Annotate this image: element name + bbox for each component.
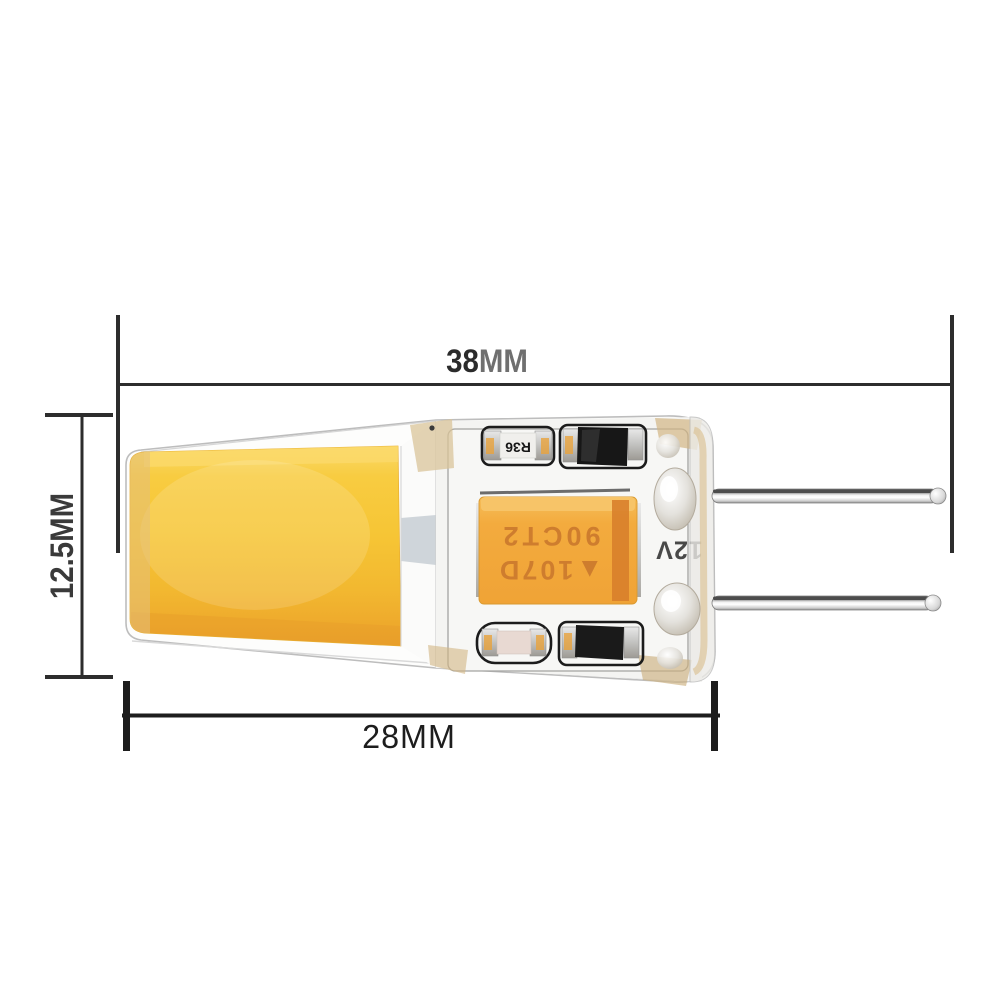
svg-text:▲107D: ▲107D [497, 555, 603, 585]
solder-bump-bottom [657, 647, 683, 669]
bulb-dimension-drawing: R36 ▲107D 90CT2 [0, 0, 1000, 1000]
dimension-label-12-5mm: 12.5MM [44, 493, 80, 599]
cob-led [130, 446, 401, 646]
diode-bottom [562, 625, 639, 660]
resistor-marking-text: R36 [505, 439, 531, 455]
diode-top [563, 427, 643, 466]
pin-bottom [712, 595, 941, 611]
capacitor: ▲107D 90CT2 [476, 490, 641, 604]
dimension-body-length: 28MM [122, 681, 720, 755]
dimension-label-28mm: 28MM [362, 718, 456, 755]
dimension-height: 12.5MM [44, 415, 113, 677]
pcb-speck [429, 425, 434, 430]
pin-top [712, 488, 946, 504]
svg-text:90CT2: 90CT2 [499, 521, 600, 551]
flux-patch-bottom-left [428, 645, 468, 674]
cob-sheen [140, 460, 370, 610]
dimension-label-38mm: 38MM [446, 343, 528, 379]
solder-blob-top [654, 468, 696, 530]
solder-bump-top [656, 434, 680, 458]
resistor-bottom [482, 629, 546, 656]
product-dimension-diagram: R36 ▲107D 90CT2 [0, 0, 1000, 1000]
resistor-r36: R36 [484, 431, 552, 460]
pcb: R36 ▲107D 90CT2 [410, 417, 703, 686]
led-bulb: R36 ▲107D 90CT2 [126, 416, 946, 686]
cob-left-edge [130, 452, 150, 633]
